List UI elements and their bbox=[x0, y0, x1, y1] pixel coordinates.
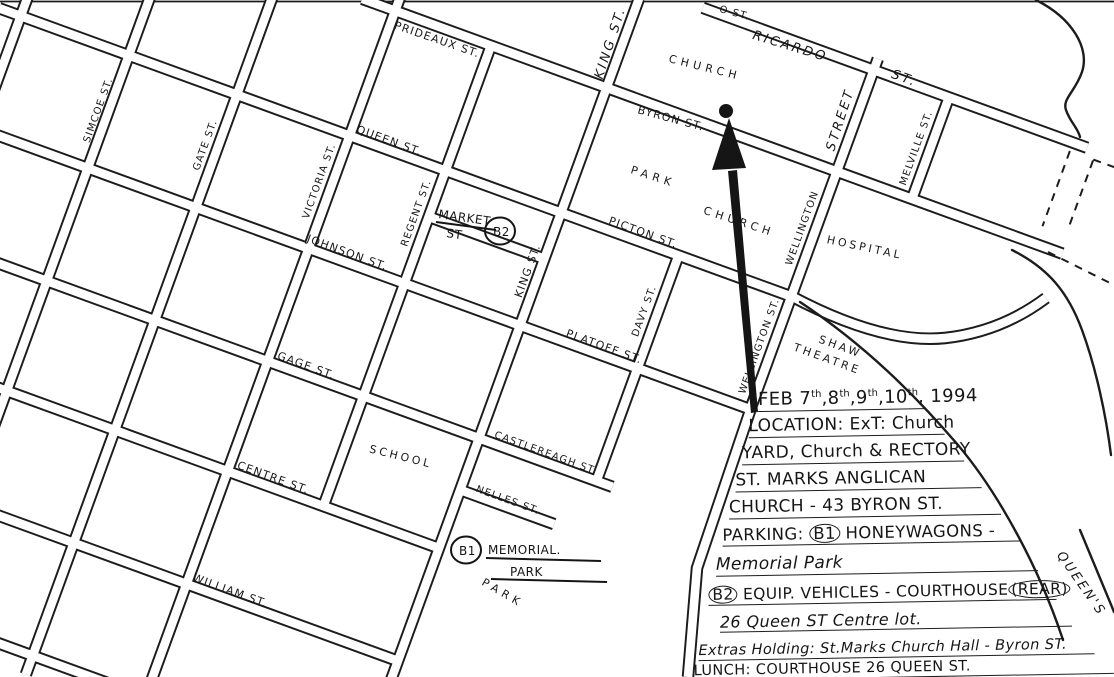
b1-marker: B1 bbox=[459, 544, 476, 558]
place-label-park-letters: PARK bbox=[479, 576, 526, 610]
street-label-queens: QUEEN'S bbox=[1053, 549, 1108, 619]
place-label-church-north: CHURCH bbox=[667, 52, 742, 83]
memorial-park-label: PARK bbox=[510, 565, 544, 579]
queens-parade-roads bbox=[800, 250, 1114, 640]
annotation-memorial-b1: B1 MEMORIAL. PARK bbox=[451, 537, 607, 583]
place-label-shaw-theatre: SHAW THEATRE bbox=[791, 325, 869, 377]
location-dot bbox=[719, 104, 733, 118]
dashed-boundary bbox=[1043, 151, 1114, 285]
street-network bbox=[0, 0, 1103, 677]
shoreline bbox=[1036, 0, 1084, 137]
memorial-label: MEMORIAL. bbox=[488, 543, 561, 557]
map-svg: PRIDEAUX ST. QUEEN ST. JOHNSON ST. GAGE … bbox=[0, 0, 1114, 677]
place-label-hospital: HOSPITAL bbox=[826, 233, 904, 262]
location-pointer bbox=[712, 104, 758, 413]
b2-marker: B2 bbox=[493, 225, 510, 239]
location-map-document: PRIDEAUX ST. QUEEN ST. JOHNSON ST. GAGE … bbox=[0, 0, 1114, 677]
place-label-school: SCHOOL bbox=[368, 443, 434, 471]
market-label-st: ST bbox=[446, 226, 464, 242]
place-label-park: PARK bbox=[629, 163, 677, 190]
